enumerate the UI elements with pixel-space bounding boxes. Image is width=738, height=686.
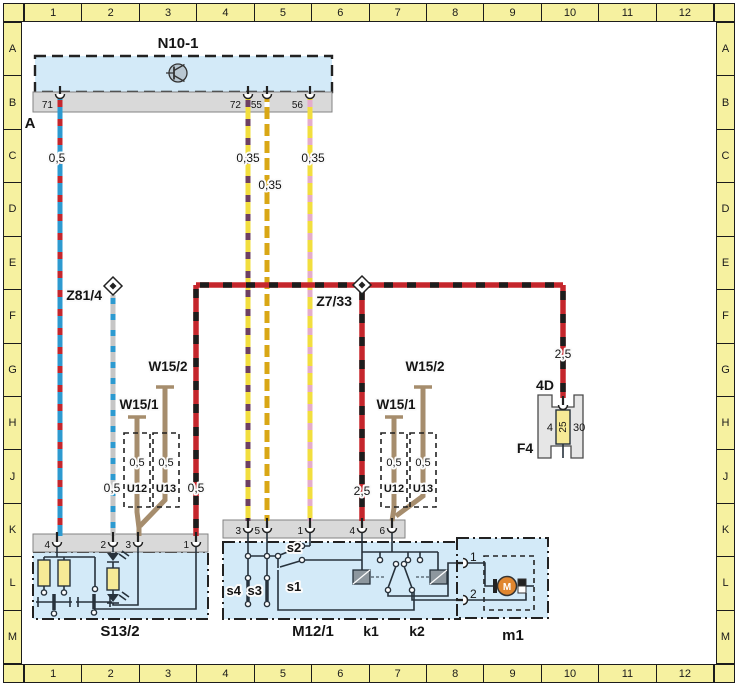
gauge-label: 0,35 xyxy=(258,178,282,192)
grid-row-label: E xyxy=(3,237,22,290)
ground-u12-label: U12 xyxy=(127,483,147,495)
connector-z7-33-icon xyxy=(353,276,371,294)
gauge-label: 0,5 xyxy=(415,457,430,469)
ground-w15-2-label: W15/2 xyxy=(148,359,187,374)
switch-s4-label: s4 xyxy=(227,583,242,598)
grid-row-label: D xyxy=(3,183,22,236)
m12-1-pin-label: 3 xyxy=(235,526,241,537)
grid-row-label: L xyxy=(716,557,735,610)
schematic-canvas: N10-1 A 71 72 55 56 0,5 0,35 0,35 0,35 Z… xyxy=(0,0,738,686)
gauge-label: 0,5 xyxy=(49,151,66,165)
grid-col-label: 2 xyxy=(82,664,139,683)
grid-row-label: M xyxy=(3,611,22,664)
m12-1-pin-label: 6 xyxy=(379,526,385,537)
grid-frame-right: A B C D E F G H J K L M xyxy=(716,22,735,664)
m12-1-pin-label: 1 xyxy=(297,526,303,537)
grid-col-label: 12 xyxy=(657,3,714,22)
gauge-label: 0,5 xyxy=(129,457,144,469)
wiring-diagram-page: 1 2 3 4 5 6 7 8 9 10 11 12 1 2 3 4 5 6 7… xyxy=(0,0,738,686)
pin-55-label: 55 xyxy=(251,100,263,111)
m12-1-pin-label: 5 xyxy=(254,526,260,537)
frame-corner xyxy=(714,664,735,683)
grid-row-label: H xyxy=(3,397,22,450)
ground-box-left xyxy=(124,433,179,507)
grid-col-label: 7 xyxy=(370,664,427,683)
grid-col-label: 1 xyxy=(24,664,82,683)
grid-col-label: 3 xyxy=(140,3,197,22)
s13-2-pin-label: 4 xyxy=(44,540,50,551)
m1-pin-1-label: 1 xyxy=(470,550,477,564)
gauge-label: 0,5 xyxy=(188,481,205,495)
s13-2-name-label: S13/2 xyxy=(100,623,139,640)
grid-row-label: C xyxy=(3,130,22,183)
relay-k1-label: k1 xyxy=(363,623,379,639)
switch-s2-label: s2 xyxy=(287,540,301,555)
grid-col-label: 8 xyxy=(427,3,484,22)
switch-s1-label: s1 xyxy=(287,579,301,594)
ground-w15-2-label: W15/2 xyxy=(405,359,444,374)
s13-2-pin-label: 1 xyxy=(183,540,189,551)
grid-row-label: J xyxy=(3,450,22,503)
frame-corner xyxy=(714,3,735,22)
gauge-label: 0,5 xyxy=(104,481,121,495)
relay-coil-k2 xyxy=(430,570,447,584)
s13-2-pin-label: 2 xyxy=(100,540,106,551)
ground-box-mid xyxy=(381,433,436,507)
s13-2-pin-label: 3 xyxy=(125,540,131,551)
grid-row-label: G xyxy=(3,344,22,397)
pin-56-label: 56 xyxy=(292,100,304,111)
grid-row-label: C xyxy=(716,130,735,183)
grid-row-label: B xyxy=(716,76,735,129)
ground-u13-label: U13 xyxy=(413,483,433,495)
gauge-label: 2,5 xyxy=(555,347,572,361)
f4-name-label: F4 xyxy=(517,440,534,456)
grid-col-label: 9 xyxy=(484,664,541,683)
grid-col-label: 3 xyxy=(140,664,197,683)
grid-row-label: H xyxy=(716,397,735,450)
grid-col-label: 10 xyxy=(542,3,599,22)
connector-z81-4-icon xyxy=(104,277,122,295)
grid-col-label: 5 xyxy=(255,3,312,22)
grid-frame-top: 1 2 3 4 5 6 7 8 9 10 11 12 xyxy=(3,3,735,22)
grid-col-label: 1 xyxy=(24,3,82,22)
grid-row-label: G xyxy=(716,344,735,397)
pin-72-label: 72 xyxy=(230,100,242,111)
grid-frame-bottom: 1 2 3 4 5 6 7 8 9 10 11 12 xyxy=(3,664,735,683)
gauge-label: 2,5 xyxy=(354,484,371,498)
grid-row-label: F xyxy=(3,290,22,343)
grid-col-label: 5 xyxy=(255,664,312,683)
ground-w15-1-label: W15/1 xyxy=(119,397,159,412)
ground-u12-label: U12 xyxy=(384,483,404,495)
f4-terminal-30-label: 30 xyxy=(573,422,585,434)
m12-1-name-label: M12/1 xyxy=(292,623,334,640)
grid-row-label: J xyxy=(716,450,735,503)
grid-row-label: K xyxy=(716,504,735,557)
m12-1-pin-label: 4 xyxy=(349,526,355,537)
gauge-label: 0,5 xyxy=(158,457,173,469)
ground-u13-label: U13 xyxy=(156,483,176,495)
grid-row-label: A xyxy=(3,22,22,76)
gauge-label: 0,5 xyxy=(386,457,401,469)
grid-col-label: 6 xyxy=(312,3,369,22)
pin-71-label: 71 xyxy=(42,100,54,111)
grid-row-label: K xyxy=(3,504,22,557)
grid-row-label: A xyxy=(716,22,735,76)
grid-row-label: E xyxy=(716,237,735,290)
motor-brush-right xyxy=(518,579,526,593)
relay-coil-k1 xyxy=(353,570,370,584)
f4-terminal-4-label: 4 xyxy=(547,422,553,434)
grid-row-label: B xyxy=(3,76,22,129)
grid-col-label: 2 xyxy=(82,3,139,22)
relay-k2-label: k2 xyxy=(409,623,425,639)
gauge-label: 0,35 xyxy=(301,151,325,165)
grid-col-label: 9 xyxy=(484,3,541,22)
motor-m-label: M xyxy=(503,582,511,593)
grid-col-label: 11 xyxy=(599,664,656,683)
connector-z81-4-label: Z81/4 xyxy=(66,287,102,303)
frame-corner xyxy=(3,664,24,683)
grid-row-label: F xyxy=(716,290,735,343)
control-unit-n10-1 xyxy=(33,56,332,112)
connector-z7-33-label: Z7/33 xyxy=(316,293,352,309)
grid-row-label: M xyxy=(716,611,735,664)
n10-1-label: N10-1 xyxy=(158,35,199,52)
grid-row-label: D xyxy=(716,183,735,236)
f4-rating-label: 25 xyxy=(558,421,569,433)
switch-s3-label: s3 xyxy=(248,583,262,598)
grid-frame-left: A B C D E F G H J K L M xyxy=(3,22,22,664)
grid-col-label: 10 xyxy=(542,664,599,683)
m1-name-label: m1 xyxy=(502,627,524,644)
grid-col-label: 6 xyxy=(312,664,369,683)
grid-row-label: L xyxy=(3,557,22,610)
grid-col-label: 11 xyxy=(599,3,656,22)
grid-col-label: 4 xyxy=(197,3,254,22)
grid-col-label: 7 xyxy=(370,3,427,22)
motor-brush-left xyxy=(493,579,497,593)
frame-corner xyxy=(3,3,24,22)
f4-grid-ref-label: 4D xyxy=(536,377,554,393)
gauge-label: 0,35 xyxy=(236,151,260,165)
grid-col-label: 4 xyxy=(197,664,254,683)
ground-w15-1-label: W15/1 xyxy=(376,397,416,412)
connector-a-label: A xyxy=(25,115,36,132)
f4-pin xyxy=(559,396,568,410)
grid-col-label: 12 xyxy=(657,664,714,683)
grid-col-label: 8 xyxy=(427,664,484,683)
m1-pin-2-label: 2 xyxy=(470,587,477,601)
